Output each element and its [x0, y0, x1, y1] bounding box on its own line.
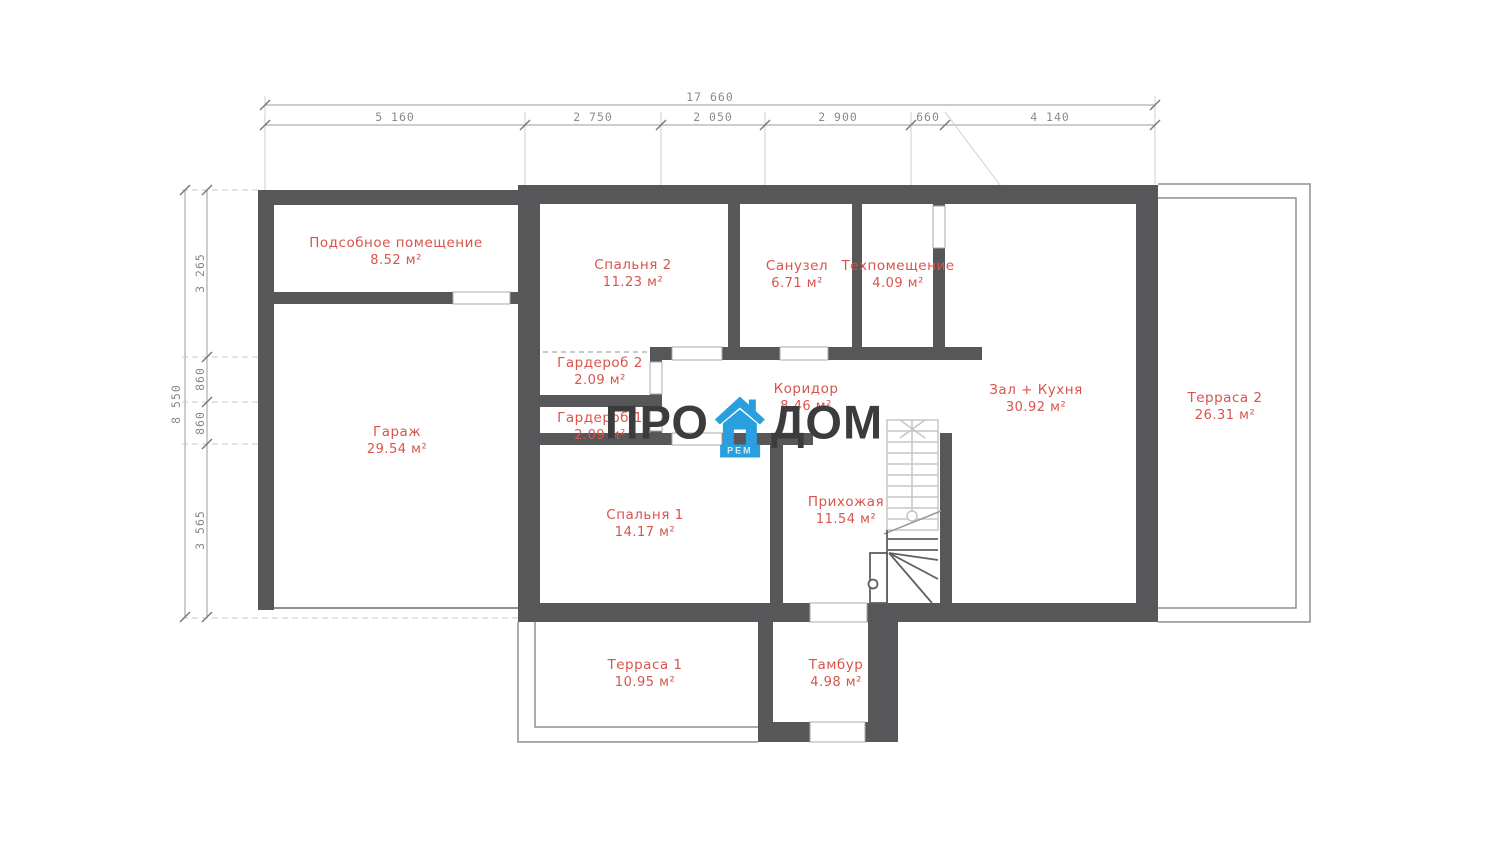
room-label-terrasa2: Терраса 226.31 м²: [1187, 389, 1262, 425]
room-label-sanuzel: Санузел6.71 м²: [766, 257, 828, 293]
dim-top-segment: 2 900: [818, 110, 858, 124]
dim-top-segment: 5 160: [375, 110, 415, 124]
room-label-podsobnoe: Подсобное помещение8.52 м²: [309, 234, 482, 270]
dim-left-segment: 3 265: [193, 253, 207, 293]
dim-top-segment: 660: [916, 110, 940, 124]
room-label-prihozhaya: Прихожая11.54 м²: [808, 493, 884, 529]
dim-top-total: 17 660: [686, 90, 734, 104]
logo-text-left: ПРО: [605, 395, 709, 450]
room-label-tehpomeshenie: Техпомещение4.09 м²: [841, 257, 954, 293]
logo-text-right: ДОМ: [771, 395, 883, 450]
room-label-spalnya2: Спальня 211.23 м²: [594, 256, 671, 292]
dim-top-segment: 2 050: [693, 110, 733, 124]
prodom-logo: ПРО РЕМ ДОМ: [605, 395, 883, 450]
room-label-garazh: Гараж29.54 м²: [367, 423, 427, 459]
room-label-spalnya1: Спальня 114.17 м²: [606, 506, 683, 542]
house-icon: РЕМ: [714, 394, 766, 446]
room-label-tambur: Тамбур4.98 м²: [809, 656, 864, 692]
dim-left-segment: 860: [193, 411, 207, 435]
room-label-terrasa1: Терраса 110.95 м²: [607, 656, 682, 692]
dim-left-segment: 3 565: [193, 510, 207, 550]
house-icon-svg: [714, 394, 766, 446]
dim-top-segment: 2 750: [573, 110, 613, 124]
dim-top-segment: 4 140: [1030, 110, 1070, 124]
floor-plan-page: 17 660 5 160 2 750 2 050 2 900 660 4 140…: [0, 0, 1500, 849]
dim-left-segment: 860: [193, 367, 207, 391]
room-label-garderob2: Гардероб 22.09 м²: [557, 354, 643, 390]
logo-badge: РЕМ: [720, 444, 760, 457]
dim-left-total: 8 550: [169, 384, 183, 424]
room-label-zal-kuhnya: Зал + Кухня30.92 м²: [989, 381, 1082, 417]
